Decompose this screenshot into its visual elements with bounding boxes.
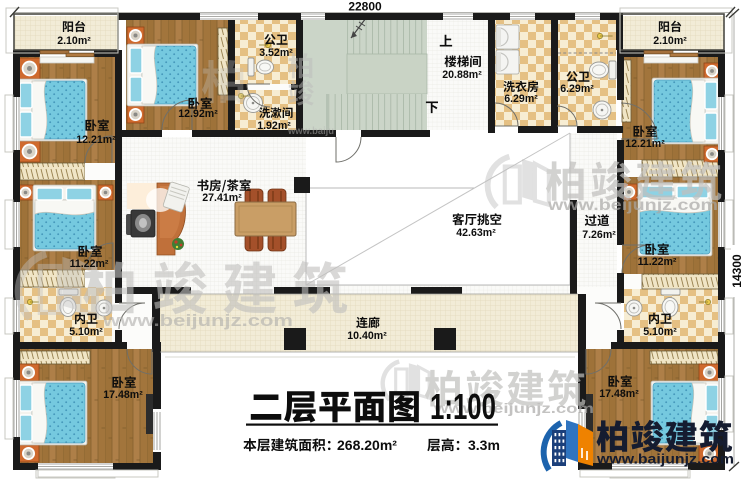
svg-text:42.63m²: 42.63m² (456, 227, 496, 239)
svg-text:11.22m²: 11.22m² (70, 258, 109, 270)
svg-text:268.20m²: 268.20m² (337, 437, 397, 453)
svg-text:20.88m²: 20.88m² (442, 69, 482, 81)
svg-text:3.52m²: 3.52m² (259, 47, 293, 59)
svg-text:6.29m²: 6.29m² (560, 83, 594, 95)
svg-text:1:100: 1:100 (430, 386, 496, 427)
svg-text:www.beijunjz.com: www.beijunjz.com (102, 311, 293, 330)
svg-text:17.48m²: 17.48m² (103, 389, 143, 401)
svg-text:7.26m²: 7.26m² (582, 229, 616, 241)
svg-text:11.22m²: 11.22m² (638, 256, 677, 268)
svg-text:www.beijunjz.com: www.beijunjz.com (547, 197, 718, 214)
svg-text:1.92m²: 1.92m² (257, 120, 291, 132)
svg-text:www.baiju: www.baiju (287, 125, 334, 137)
svg-text:12.21m²: 12.21m² (625, 138, 665, 150)
svg-text:6.29m²: 6.29m² (504, 93, 538, 105)
svg-text:2.10m²: 2.10m² (653, 35, 687, 47)
svg-text:27.41m²: 27.41m² (202, 192, 242, 204)
svg-text:10.40m²: 10.40m² (347, 330, 387, 342)
svg-text:12.21m²: 12.21m² (76, 134, 116, 146)
svg-text:2.10m²: 2.10m² (57, 35, 91, 47)
svg-text:14300: 14300 (730, 254, 744, 288)
svg-text:22800: 22800 (348, 0, 382, 14)
svg-text:5.10m²: 5.10m² (69, 326, 103, 338)
svg-text:3.3m: 3.3m (468, 437, 500, 453)
svg-text:17.48m²: 17.48m² (599, 388, 639, 400)
svg-text:12.92m²: 12.92m² (178, 108, 218, 120)
svg-text:www.baijunjz.com: www.baijunjz.com (596, 452, 734, 467)
svg-text:5.10m²: 5.10m² (643, 326, 677, 338)
